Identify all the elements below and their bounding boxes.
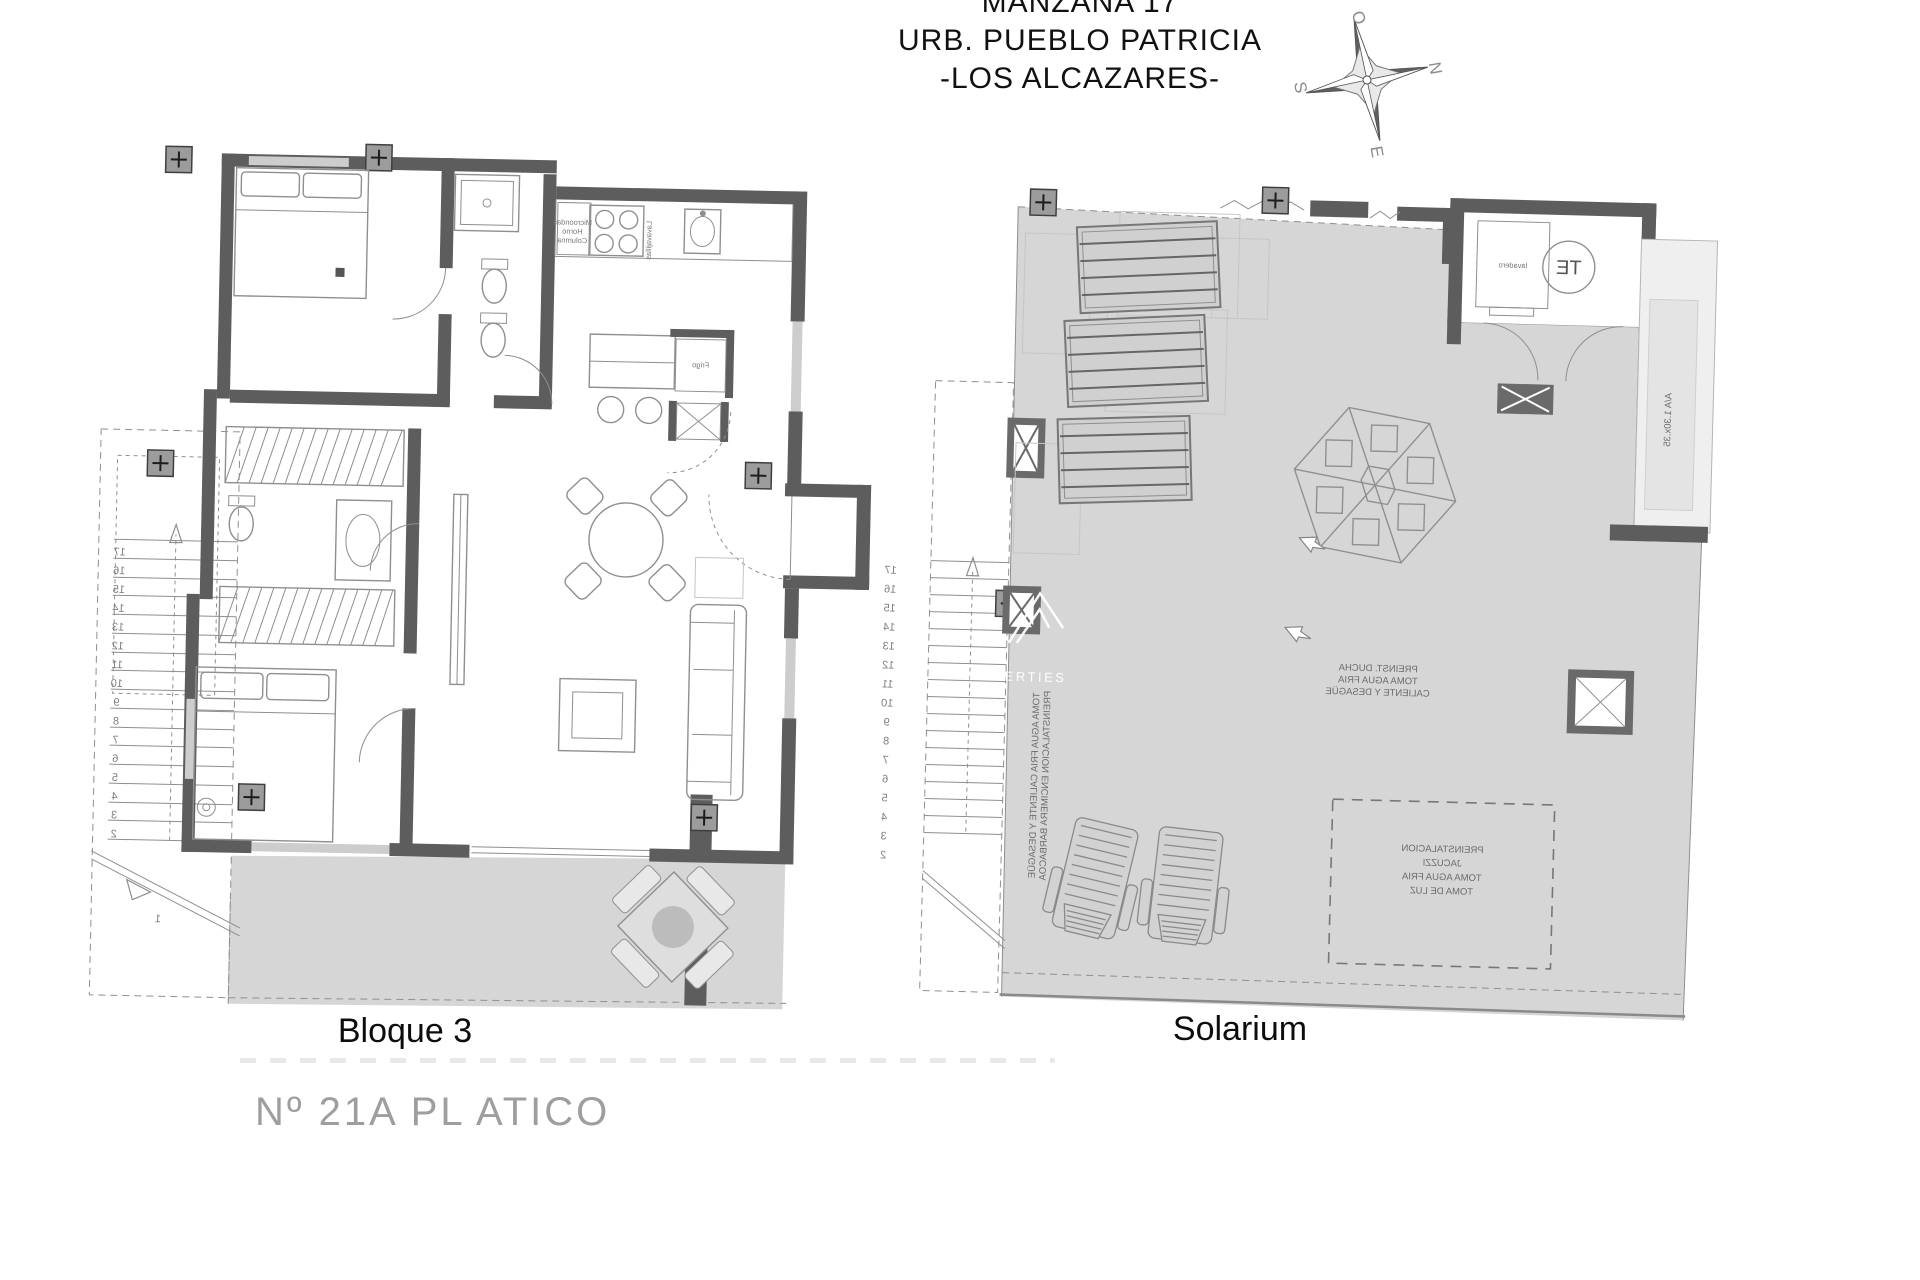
stair-number: 6 — [112, 753, 118, 765]
svg-text:TOMA DE LUZ: TOMA DE LUZ — [1410, 885, 1474, 898]
shower-annotation: PREINST. DUCHA TOMA AGUA FRIA CALIENTE Y… — [1325, 662, 1430, 700]
stair-number: 4 — [881, 811, 887, 823]
stair-number: 7 — [112, 734, 118, 746]
stair-number: 4 — [111, 791, 117, 803]
island — [588, 334, 675, 424]
ac-unit-label: A/A 1.30x.35 — [1662, 393, 1674, 447]
stair-number: 10 — [881, 697, 894, 709]
sofa — [687, 604, 747, 800]
svg-text:PREINSTALACION: PREINSTALACION — [1401, 843, 1484, 856]
compass-east-letter: E — [1366, 144, 1387, 158]
unit-number-label: Nº 21A PL ATICO — [255, 1090, 610, 1135]
fridge: Frigo — [668, 329, 734, 442]
svg-text:TOMA AGUA FRIA: TOMA AGUA FRIA — [1401, 871, 1481, 884]
stair-number: 11 — [111, 659, 123, 671]
watermark-text: PROPERTIES — [958, 667, 1067, 685]
compass-rose: O N S E — [1285, 0, 1460, 170]
solarium-title: Solarium — [1080, 1010, 1400, 1049]
svg-text:Lavavajillas: Lavavajillas — [644, 221, 654, 260]
stair-number-one: 1 — [155, 913, 161, 925]
svg-text:Horno: Horno — [562, 227, 583, 236]
stair-numbers-right: 171615141312111098765432 — [877, 564, 897, 861]
laundry-label: lavadero — [1498, 260, 1527, 270]
compass-west-letter: O — [1347, 8, 1369, 27]
wardrobe-2 — [219, 586, 395, 646]
stair-number: 10 — [111, 678, 123, 690]
stair-number: 17 — [113, 546, 125, 558]
dishwasher-label: Lavavajillas — [644, 221, 654, 260]
stair-number: 12 — [882, 659, 895, 671]
stair-number: 7 — [882, 754, 888, 766]
svg-text:TOMA AGUA FRIA: TOMA AGUA FRIA — [1337, 674, 1417, 687]
floor-plan-sheet: MANZANA 17 URB. PUEBLO PATRICIA -LOS ALC… — [0, 0, 1920, 1280]
header-line-town: -LOS ALCAZARES- — [870, 60, 1290, 98]
svg-text:PREINST. DUCHA: PREINST. DUCHA — [1338, 662, 1418, 675]
svg-text:Columna: Columna — [556, 235, 587, 245]
stair-number: 13 — [112, 621, 124, 633]
bedroom-1 — [234, 168, 448, 320]
dining-table — [562, 475, 690, 604]
stair-number: 12 — [111, 640, 123, 652]
stair-number: 16 — [884, 583, 897, 595]
compass-north-letter: N — [1425, 60, 1446, 75]
vent-box — [1497, 383, 1554, 414]
shaft-box-2 — [1002, 585, 1041, 634]
wardrobe-1 — [225, 427, 404, 487]
stair-number: 6 — [882, 773, 888, 785]
fridge-label: Frigo — [692, 360, 709, 369]
entry-door — [707, 495, 792, 580]
svg-text:Microondas: Microondas — [553, 217, 592, 227]
stair-number: 15 — [883, 602, 896, 614]
shaft-box-1 — [1006, 418, 1046, 479]
shower-tray — [1567, 669, 1635, 735]
cooktop — [589, 205, 644, 256]
stair-number: 3 — [111, 809, 117, 821]
stair-number: 14 — [112, 603, 124, 615]
exterior-staircase: 171615141312111098765432 1 — [88, 429, 250, 998]
stair-number: 5 — [881, 792, 887, 804]
kitchen: Microondas Horno Columna Lavavajillas — [548, 199, 793, 475]
bloque3-title: Bloque 3 — [245, 1012, 565, 1051]
stair-number: 3 — [880, 830, 886, 842]
stair-number: 17 — [884, 564, 897, 576]
bathroom-2 — [227, 496, 420, 582]
stair-number: 9 — [883, 716, 889, 728]
stair-number: 8 — [883, 735, 889, 747]
stair-number: 15 — [113, 584, 125, 596]
coffee-table — [559, 679, 636, 753]
solarium-staircase: 171615141312111098765432 — [874, 379, 1020, 992]
sheet-header: MANZANA 17 URB. PUEBLO PATRICIA -LOS ALC… — [870, 0, 1290, 98]
stair-number: 8 — [113, 715, 119, 727]
stair-number: 2 — [111, 828, 117, 840]
solarium-floor-plan: 171615141312111098765432 TE lavadero — [849, 169, 1731, 1031]
header-line-urbanizacion: URB. PUEBLO PATRICIA — [870, 22, 1290, 60]
header-line-manzana: MANZANA 17 — [870, 0, 1290, 22]
stair-number: 11 — [882, 678, 894, 690]
column-unit-label: Microondas Horno Columna — [553, 217, 593, 245]
svg-text:JACUZZI: JACUZZI — [1422, 858, 1461, 870]
water-heater-label: TE — [1556, 257, 1582, 280]
stair-number: 2 — [880, 849, 886, 861]
stair-number: 9 — [113, 697, 119, 709]
bedroom-2 — [193, 667, 417, 844]
kitchen-sink — [684, 209, 721, 254]
stair-number: 14 — [883, 621, 896, 633]
stair-numbers-left: 171615141312111098765432 — [107, 546, 125, 840]
stair-number: 13 — [882, 640, 895, 652]
bloque3-floor-plan: 171615141312111098765432 1 — [86, 137, 884, 1033]
compass-star — [1293, 6, 1440, 153]
stair-number: 5 — [112, 772, 118, 784]
faded-text-artifact — [240, 1058, 1055, 1063]
stair-number: 16 — [113, 565, 125, 577]
